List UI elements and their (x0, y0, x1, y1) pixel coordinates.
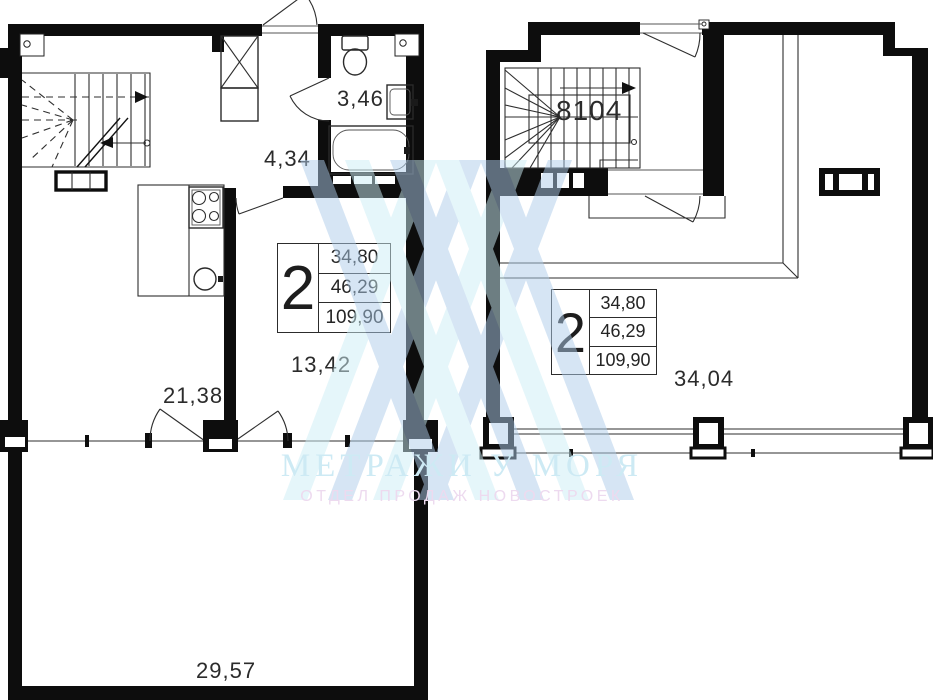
bathtub-icon (329, 126, 413, 174)
balcony-columns (481, 420, 933, 458)
area-label-bathroom: 3,46 (337, 86, 384, 112)
bathroom-sink-icon (387, 85, 418, 119)
wardrobe-icon (221, 36, 258, 121)
radiator-icon (56, 172, 106, 190)
stair-room-door-arc (608, 170, 703, 222)
kitchen-counter-icon (138, 185, 224, 296)
area-row-total: 109,90 (319, 303, 390, 332)
area-label-living-room: 34,04 (674, 366, 734, 392)
radiator-icon (822, 171, 877, 193)
info-box-left: 2 34,80 46,29 109,90 (277, 243, 391, 333)
room-count: 2 (278, 244, 319, 332)
area-row-apartment: 46,29 (590, 318, 656, 346)
bathroom-door-arc (290, 78, 329, 121)
right-plan (481, 20, 933, 458)
staircase-lower-icon (22, 73, 150, 167)
toilet-icon (342, 36, 368, 75)
upper-entry-door-arc (640, 24, 702, 57)
window-columns (0, 420, 438, 452)
area-row-living: 34,80 (590, 290, 656, 318)
info-box-right: 2 34,80 46,29 109,90 (551, 289, 657, 375)
kitchen-sink-icon (194, 268, 223, 290)
bedroom-door-arc (236, 198, 283, 214)
floor-plan-drawing (0, 0, 933, 700)
area-label-bedroom: 13,42 (291, 352, 351, 378)
area-label-terrace: 29,57 (196, 658, 256, 684)
floor-plan-page: 21,38 13,42 4,34 3,46 29,57 8104 34,04 2… (0, 0, 933, 700)
area-label-stair-hall: 8104 (556, 95, 622, 127)
entry-door-arc (262, 0, 318, 33)
stove-icon (189, 187, 223, 228)
area-row-apartment: 46,29 (319, 274, 390, 304)
room-count: 2 (552, 290, 590, 374)
area-label-hallway: 4,34 (264, 146, 311, 172)
stair-landing-outline (589, 196, 725, 218)
area-label-living-kitchen: 21,38 (163, 383, 223, 409)
area-row-living: 34,80 (319, 244, 390, 274)
area-row-total: 109,90 (590, 347, 656, 374)
void-parapet-line (500, 35, 798, 278)
